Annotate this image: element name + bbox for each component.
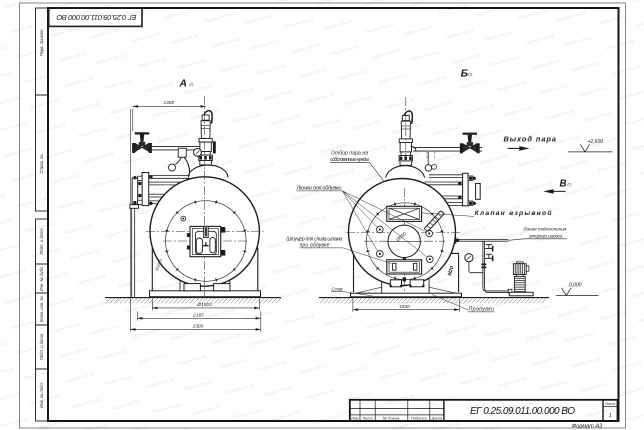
svg-text:Подп. и дата: Подп. и дата (39, 228, 44, 255)
svg-text:1: 1 (609, 413, 612, 419)
svg-text:Взам. инв. №: Взам. инв. № (39, 296, 44, 322)
svg-text:Клапан взрывной: Клапан взрывной (475, 209, 553, 217)
svg-text:1830: 1830 (399, 304, 410, 310)
svg-text:Подпись: Подпись (411, 415, 427, 420)
svg-text:Подп. и дата: Подп. и дата (39, 333, 44, 360)
svg-text:Ø1920: Ø1920 (196, 302, 212, 308)
svg-text:Продувки: Продувки (469, 307, 495, 313)
svg-text:Инв. № дубл.: Инв. № дубл. (39, 266, 44, 292)
svg-text:2165: 2165 (192, 312, 204, 318)
svg-text:Дата: Дата (431, 415, 443, 420)
svg-text:(2): (2) (468, 72, 472, 76)
svg-text:1300: 1300 (163, 100, 174, 106)
svg-text:Штуцер для слива шлама: Штуцер для слива шлама (286, 236, 342, 242)
svg-text:(2): (2) (189, 82, 193, 86)
svg-text:2300: 2300 (192, 323, 204, 329)
svg-text:Отбор пара на: Отбор пара на (331, 150, 368, 156)
svg-text:Линия подключения: Линия подключения (522, 227, 566, 232)
svg-text:второго насоса: второго насоса (529, 233, 562, 238)
svg-text:№ докум.: № докум. (383, 415, 401, 420)
svg-text:+2,600: +2,600 (588, 139, 604, 145)
svg-text:Изм: Изм (351, 415, 359, 420)
svg-text:ЕГ 0.25.09.011.00.000 ВО: ЕГ 0.25.09.011.00.000 ВО (56, 13, 136, 22)
svg-text:Лист: Лист (604, 401, 616, 406)
svg-text:Выход пара: Выход пара (504, 134, 557, 143)
svg-text:В: В (559, 178, 566, 189)
svg-text:ЕГ 0.25.09.011.00.000 ВО: ЕГ 0.25.09.011.00.000 ВО (470, 406, 575, 417)
svg-text:0,000: 0,000 (569, 283, 582, 289)
svg-text:Справ. №: Справ. № (39, 154, 44, 173)
svg-text:Инв. № подл.: Инв. № подл. (39, 382, 44, 408)
svg-text:Лист: Лист (361, 415, 373, 420)
svg-text:Перв. примен.: Перв. примен. (39, 29, 44, 57)
svg-text:(2): (2) (568, 183, 572, 187)
svg-text:Лючки для обдувки: Лючки для обдувки (296, 186, 342, 192)
svg-text:Формат А3: Формат А3 (572, 423, 603, 429)
svg-text:А: А (178, 78, 187, 90)
